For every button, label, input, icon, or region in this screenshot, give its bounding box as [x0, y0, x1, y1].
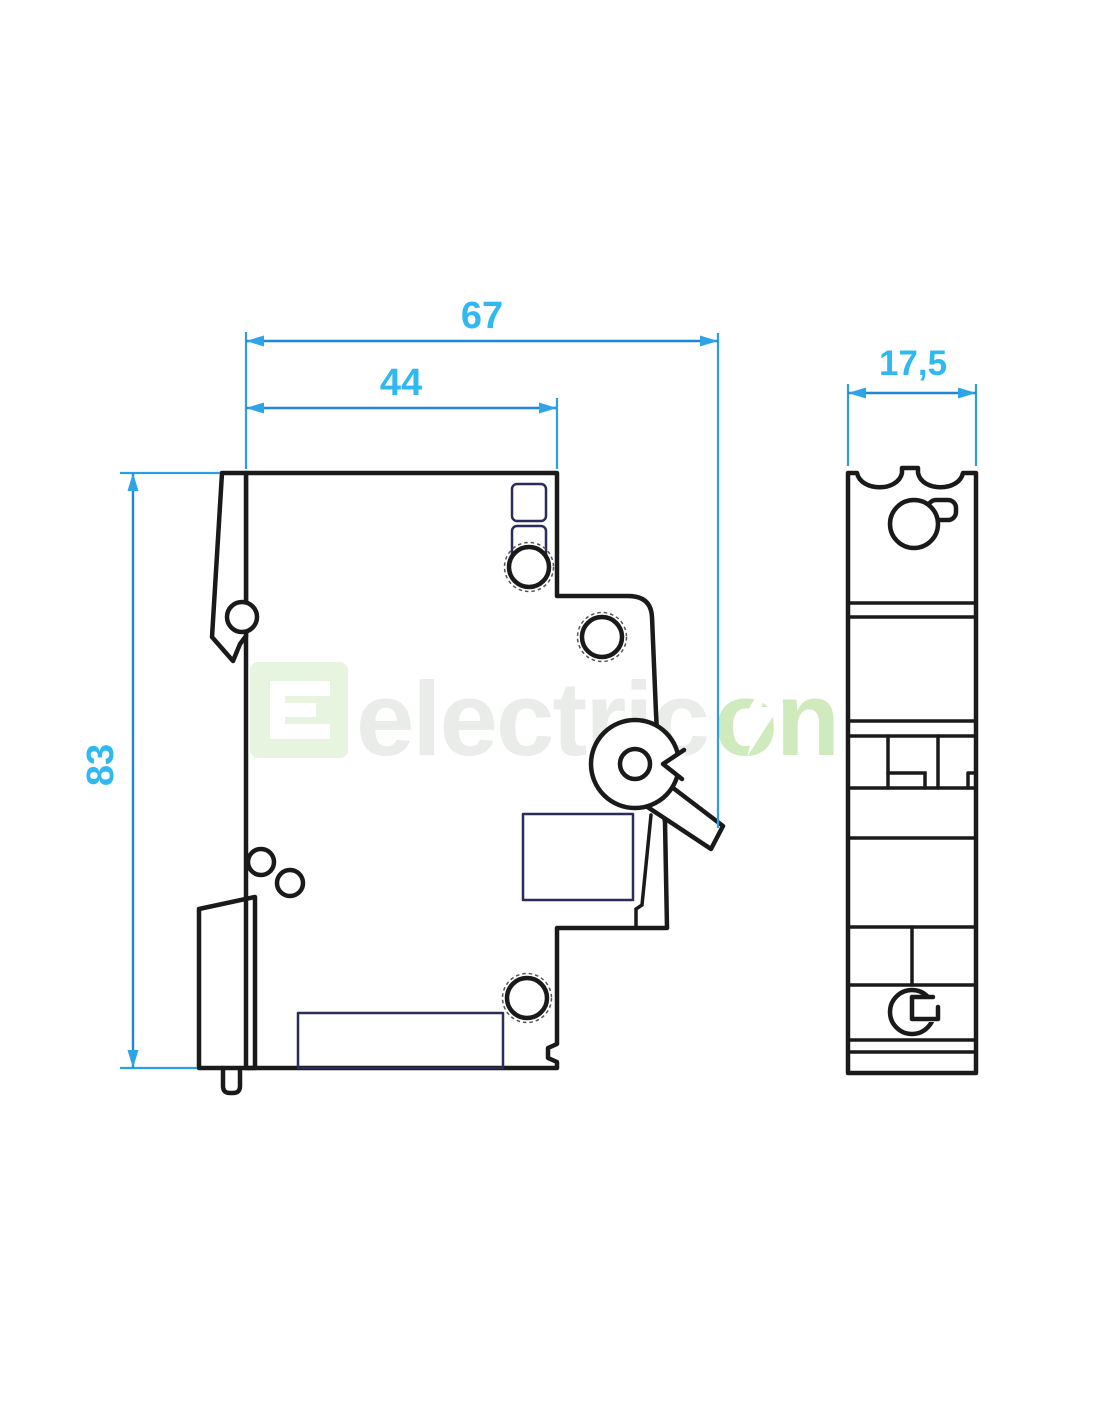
front-view — [848, 468, 976, 1073]
dimension-17-5: 17,5 — [848, 344, 976, 466]
rivet-hole-1 — [248, 849, 274, 875]
terminal-slot-upper — [512, 484, 546, 521]
drawing-page: electricon — [0, 0, 1100, 1422]
rivet-hole-2 — [277, 870, 303, 896]
dimension-44: 44 — [246, 362, 557, 469]
front-terminal-screw-bottom — [890, 990, 940, 1034]
din-tab — [223, 1068, 240, 1093]
side-view — [199, 473, 723, 1093]
rating-label-rect — [523, 814, 633, 900]
terminal-screw-bottom — [507, 978, 547, 1018]
terminal-screw-top — [509, 547, 549, 587]
dimension-label: 44 — [380, 362, 422, 404]
dimension-label: 83 — [80, 744, 122, 786]
watermark: electricon — [250, 661, 838, 778]
lever-axle — [620, 749, 650, 779]
watermark-text-green: on — [714, 661, 838, 778]
dimension-label: 17,5 — [879, 344, 947, 383]
mcb-dimension-drawing: electricon — [0, 0, 1100, 1422]
bottom-label-rect — [298, 1013, 503, 1068]
toggle-handle-front — [888, 773, 925, 788]
clip-pivot-hole — [227, 602, 257, 632]
inner-wall-line — [636, 815, 651, 928]
electricon-logo — [250, 662, 348, 758]
front-terminal-screw-top — [890, 500, 938, 548]
toggle-window — [888, 736, 976, 788]
dimension-label: 67 — [461, 295, 503, 337]
screw-hole-upper-right — [582, 617, 622, 657]
